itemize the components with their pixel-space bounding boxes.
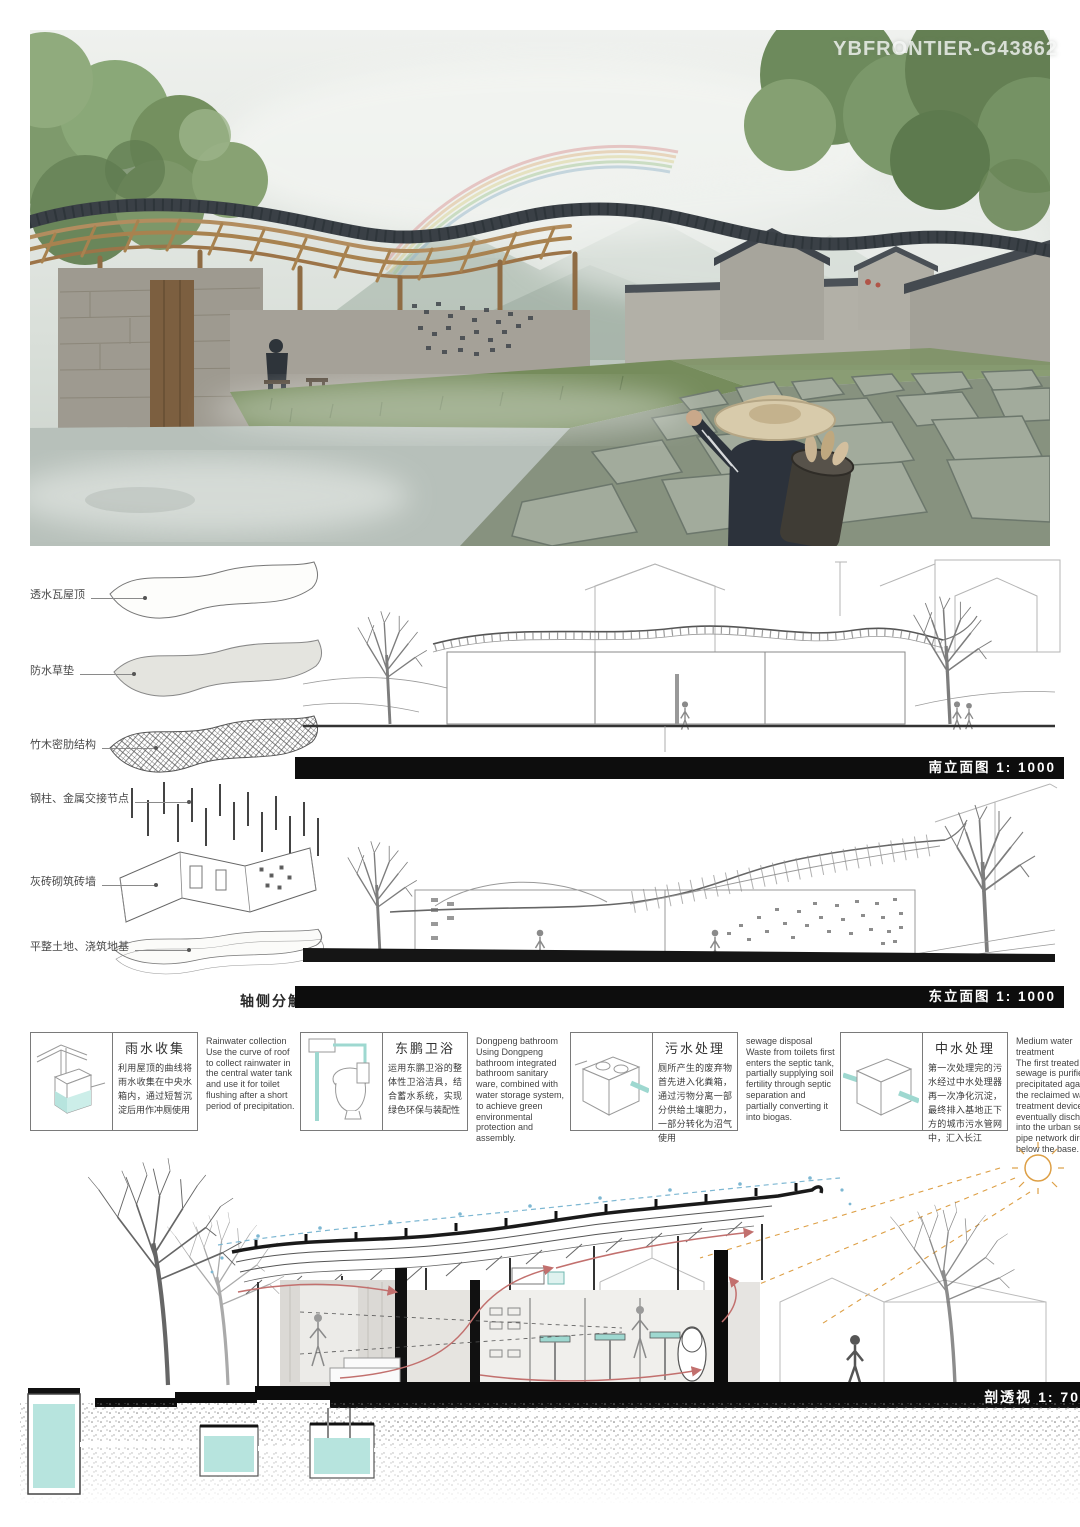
water-treatment-cube-diagram-icon	[841, 1033, 923, 1130]
tree	[914, 597, 992, 724]
south-elevation-title-bar: 南立面图 1: 1000	[295, 757, 1064, 779]
building-walls	[415, 890, 915, 954]
info-english-text: Dongpeng bathroom Using Dongpeng bathroo…	[476, 1036, 568, 1144]
info-box: 污水处理 厕所产生的废弃物首先进入化粪箱，通过污物分离一部分供给土壤肥力，一部分…	[570, 1032, 738, 1131]
axon-label-base: 平整土地、浇筑地基	[30, 938, 189, 954]
info-chinese-text: 第一次处理完的污水经过中水处理器再一次净化沉淀，最终排入基地正下方的城市污水管网…	[928, 1062, 1002, 1146]
info-title: 中水处理	[928, 1038, 1002, 1057]
east-elevation-drawing	[295, 782, 1064, 986]
leader-line	[80, 674, 134, 675]
walking-figure	[847, 1335, 863, 1386]
leader-line	[135, 950, 189, 951]
background-house	[935, 784, 1057, 890]
info-chinese-text: 厕所产生的废弃物首先进入化粪箱，通过污物分离一部分供给土壤肥力，一部分转化为沼气…	[658, 1062, 732, 1146]
axon-label-ribs: 竹木密肋结构	[30, 736, 156, 752]
presentation-board: YBFRONTIER-G43862	[0, 0, 1080, 1527]
axon-label-roof: 透水瓦屋顶	[30, 586, 145, 602]
info-unit-rainwater: 雨水收集 利用屋顶的曲线将雨水收集在中央水箱内，通过短暂沉淀后用作冲厕使用 Ra…	[30, 1030, 300, 1134]
axon-label-mat: 防水草垫	[30, 662, 134, 678]
axon-layer-mat	[114, 640, 322, 696]
axon-label-wall: 灰砖砌筑砖墙	[30, 873, 156, 889]
info-english-text: Medium water treatment The first treated…	[1016, 1036, 1080, 1155]
info-title: 污水处理	[658, 1038, 732, 1057]
leader-line	[102, 885, 156, 886]
info-unit-sewage: 污水处理 厕所产生的废弃物首先进入化粪箱，通过污物分离一部分供给土壤肥力，一部分…	[570, 1030, 840, 1134]
info-title: 东鹏卫浴	[388, 1038, 462, 1057]
south-elevation-panel: 南立面图 1: 1000	[295, 556, 1064, 779]
wavy-roof	[433, 616, 977, 652]
leader-line	[91, 598, 145, 599]
watermark: YBFRONTIER-G43862	[833, 38, 1058, 61]
info-chinese-text: 利用屋顶的曲线将雨水收集在中央水箱内，通过短暂沉淀后用作冲厕使用	[118, 1062, 192, 1118]
info-chinese-text: 运用东鹏卫浴的整体性卫浴洁具，结合蓄水系统，实现绿色环保与装配性	[388, 1062, 462, 1118]
soil	[20, 1403, 1080, 1505]
building-walls	[447, 652, 905, 724]
hero-render	[30, 30, 1050, 546]
info-english-text: Rainwater collection Use the curve of ro…	[206, 1036, 298, 1112]
rainwater-tank-diagram-icon	[31, 1033, 113, 1130]
info-unit-water-treatment: 中水处理 第一次处理完的污水经过中水处理器再一次净化沉淀，最终排入基地正下方的城…	[840, 1030, 1080, 1134]
section-perspective-drawing	[0, 1140, 1080, 1527]
toilet-diagram-icon	[301, 1033, 383, 1130]
axon-label-columns: 钢柱、金属交接节点	[30, 790, 189, 806]
info-unit-bathroom: 东鹏卫浴 运用东鹏卫浴的整体性卫浴洁具，结合蓄水系统，实现绿色环保与装配性 Do…	[300, 1030, 570, 1134]
info-box: 中水处理 第一次处理完的污水经过中水处理器再一次净化沉淀，最终排入基地正下方的城…	[840, 1032, 1008, 1131]
tree	[348, 841, 417, 954]
info-box: 雨水收集 利用屋顶的曲线将雨水收集在中央水箱内，通过短暂沉淀后用作冲厕使用	[30, 1032, 198, 1131]
leader-line	[102, 748, 156, 749]
info-english-text: sewage disposal Waste from toilets first…	[746, 1036, 838, 1122]
south-elevation-drawing	[295, 556, 1064, 757]
exploded-axon-diagram	[20, 556, 340, 988]
info-box: 东鹏卫浴 运用东鹏卫浴的整体性卫浴洁具，结合蓄水系统，实现绿色环保与装配性	[300, 1032, 468, 1131]
section-title-bar: 剖透视 1: 70	[840, 1387, 1080, 1408]
leader-line	[135, 802, 189, 803]
septic-tank-diagram-icon	[571, 1033, 653, 1130]
east-elevation-panel: 东立面图 1: 1000	[295, 782, 1064, 1008]
tree	[945, 805, 1035, 952]
east-elevation-title-bar: 东立面图 1: 1000	[295, 986, 1064, 1008]
info-title: 雨水收集	[118, 1038, 192, 1057]
